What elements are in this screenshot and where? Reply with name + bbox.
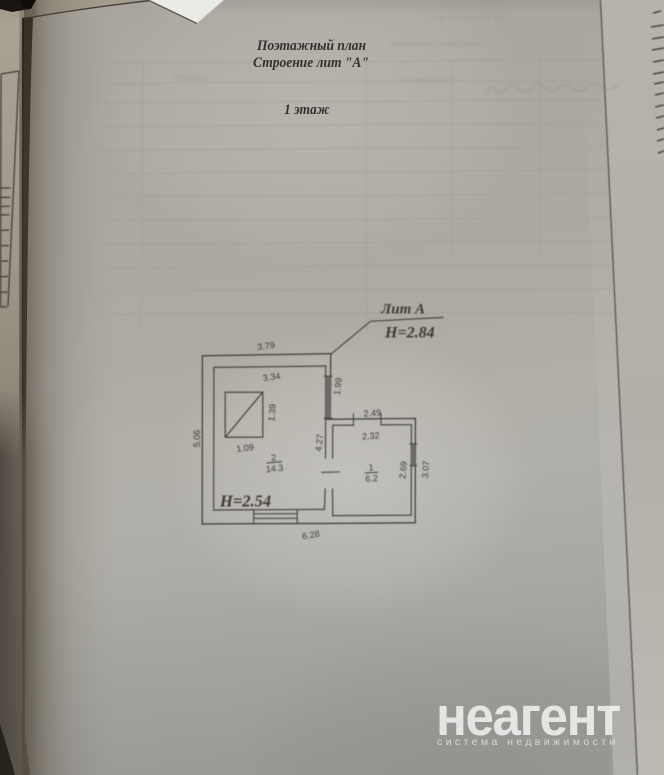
- svg-text:4 этажный Ж.О: 4 этажный Ж.О: [400, 76, 457, 85]
- svg-text:1.39: 1.39: [266, 403, 277, 421]
- svg-text:Лит А: Лит А: [380, 302, 425, 318]
- svg-text:6.28: 6.28: [301, 529, 320, 542]
- svg-text:Н=2.54: Н=2.54: [219, 492, 271, 511]
- svg-text:1: 1: [368, 462, 374, 472]
- svg-text:1.09: 1.09: [236, 442, 255, 454]
- svg-text:2.69: 2.69: [397, 461, 408, 479]
- svg-text:3.34: 3.34: [262, 371, 281, 383]
- svg-text:4.27: 4.27: [313, 434, 325, 452]
- svg-text:1.99: 1.99: [332, 377, 344, 396]
- svg-text:3.07: 3.07: [420, 460, 431, 478]
- svg-text:2.49: 2.49: [363, 408, 381, 419]
- svg-text:Размеры: Размеры: [175, 73, 208, 82]
- svg-text:14.3: 14.3: [265, 463, 283, 474]
- svg-text:т.о метки по окт: т.о метки по окт: [432, 12, 510, 22]
- svg-text:Н=2.84: Н=2.84: [384, 325, 435, 342]
- svg-text:2.32: 2.32: [362, 430, 380, 441]
- svg-text:5.06: 5.06: [192, 430, 202, 448]
- svg-text:2: 2: [271, 452, 277, 462]
- svg-text:6.2: 6.2: [365, 473, 378, 484]
- svg-text:3.79: 3.79: [257, 340, 276, 352]
